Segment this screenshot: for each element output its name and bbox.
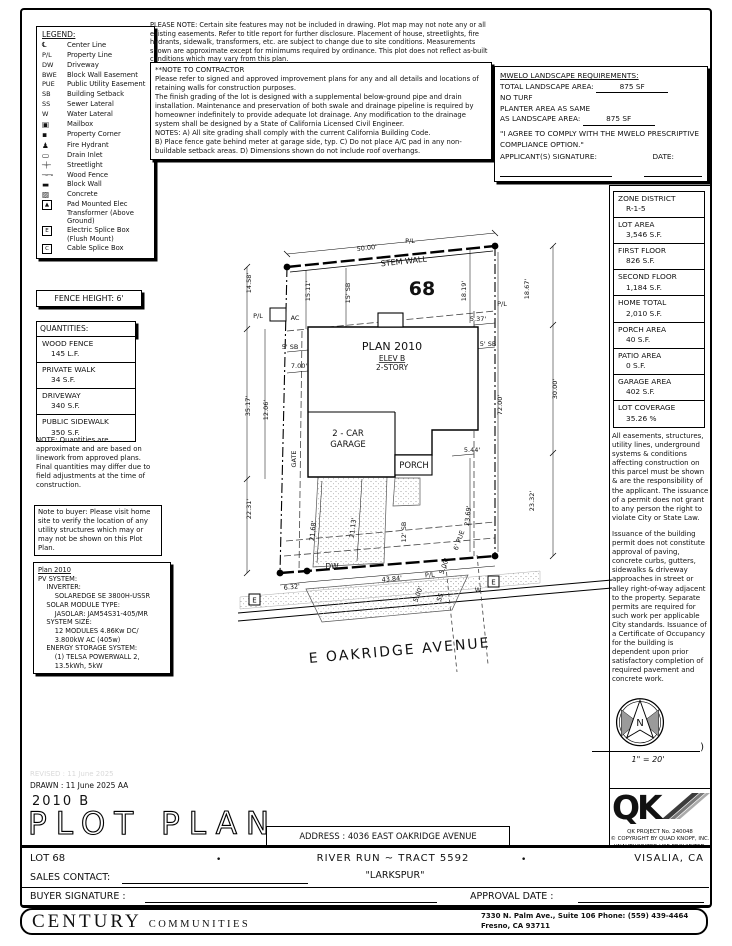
buyer-signature-line [145,889,437,903]
zone-table-row: PATIO AREA 0 S.F. [613,348,705,376]
pv-system-line: ENERGY STORAGE SYSTEM: [38,644,166,653]
dim-18-67: 18.67' [523,279,531,300]
contractor-note-box: **NOTE TO CONTRACTOR Please refer to sig… [150,62,492,160]
mwelo-no-turf: NO TURF [500,93,702,104]
lot-number: 68 [409,278,435,300]
contractor-note-paragraph: NOTES: A) All site grading shall comply … [155,129,487,138]
legend-item: ▲ Pad Mounted Elec Transformer (Above Gr… [42,200,152,225]
legend-label: Fire Hydrant [67,141,152,149]
pv-system-line: PV SYSTEM: [38,575,166,584]
zone-row-value: 0 S.F. [618,361,701,371]
quantities-row: WOOD FENCE 145 L.F. [36,336,136,364]
legend-item: BWE Block Wall Easement [42,71,152,80]
zone-row-value: 3,546 S.F. [618,230,701,240]
divider-thick-top [20,845,710,848]
ac-pad [270,308,286,321]
zone-row-label: SECOND FLOOR [618,272,701,282]
please-note-text: PLEASE NOTE: Certain site features may n… [150,21,490,64]
quantity-label: DRIVEWAY [42,391,132,401]
footer-address-line1: 7330 N. Palm Ave., Suite 106 Phone: (559… [481,912,696,921]
dim-72-00: 72.00' [496,395,504,416]
legend-symbol-icon: ▲ [42,200,67,210]
dim-5-44: 5.44' [464,446,480,454]
dim-12-sb: 12' SB [400,522,408,543]
scale-note: ) 1" = 20' [592,744,704,764]
legend-item: ▭ Drain Inlet [42,151,152,160]
zone-table-row: PORCH AREA 40 S.F. [613,322,705,350]
legend-symbol-icon: ▬ [42,180,67,189]
approval-date-label: APPROVAL DATE : [470,891,554,902]
mwelo-signature-labels: APPLICANT(S) SIGNATURE: DATE: [500,152,702,163]
quantity-label: PUBLIC SIDEWALK [42,417,132,427]
legend-symbol-icon: C [42,244,67,254]
electric-splice-box-label-right: E [491,579,495,587]
legend-label: Property Corner [67,130,152,138]
sheet-title: PLOT PLAN [28,806,278,842]
quantity-value: 340 S.F. [42,401,132,411]
buyer-signature-label: BUYER SIGNATURE : [30,891,126,902]
sales-contact-label: SALES CONTACT: [30,872,110,883]
pv-system-line: Plan 2010 [38,566,166,575]
legend-label: Sewer Lateral [67,100,152,108]
legend-symbol-icon: W [42,110,67,119]
dim-5-00-a: 5.00' [438,557,451,575]
contractor-note-title: **NOTE TO CONTRACTOR [155,66,487,75]
legend-label: Block Wall Easement [67,71,152,79]
dim-7-00: 7.00' [291,362,307,370]
zone-table-row: GARAGE AREA 402 S.F. [613,374,705,402]
legend-item: ▪ Property Corner [42,130,152,139]
legend-title: LEGEND: [42,30,152,39]
zone-row-value: R-1-5 [618,204,701,214]
legend-item: ─∘─∘ Wood Fence [42,171,152,179]
bullet-left: • [216,855,221,865]
legend-item: ℄ Center Line [42,41,152,50]
plot-plan-sheet: LEGEND: ℄ Center Line P/L Property Line … [0,0,732,946]
zone-table-row: HOME TOTAL 2,010 S.F. [613,295,705,323]
zone-row-label: PORCH AREA [618,325,701,335]
permit-note: Issuance of the building permit does not… [612,530,711,685]
legend-symbol-icon: ♟ [42,141,67,150]
legend-item: SS Sewer Lateral [42,100,152,109]
plan-story: 2-STORY [376,363,408,372]
qk-copyright: © COPYRIGHT BY QUAD KNOPF, INC. [610,836,710,843]
pv-system-line: INVERTER: [38,583,166,592]
brand-century: CENTURY [32,911,142,933]
tract-label: RIVER RUN ~ TRACT 5592 [268,853,518,864]
zone-row-value: 826 S.F. [618,256,701,266]
pv-system-line: 13.5kWh, 5kW [38,662,166,671]
quantity-label: WOOD FENCE [42,339,132,349]
footer-address: 7330 N. Palm Ave., Suite 106 Phone: (559… [481,912,696,931]
quantities-note: NOTE: Quantities are approximate and are… [36,436,152,490]
legend-label: Concrete [67,190,152,198]
mwelo-planter-value: 875 SF [583,114,655,126]
pv-system-line: JASOLAR: JAM54S31-405/MR [38,610,166,619]
quantities-row: PRIVATE WALK 34 S.F. [36,362,136,390]
mwelo-total-value: 875 SF [596,82,668,94]
lot-label: LOT 68 [30,853,65,864]
subdivision-label: "LARKSPUR" [330,870,460,881]
scale-line: ) [592,744,704,752]
legend-symbol-icon: BWE [42,71,67,80]
legend-item: W Water Lateral [42,110,152,119]
dim-30-00: 30.00' [551,379,559,400]
zone-row-label: ZONE DISTRICT [618,194,701,204]
legend-item: P/L Property Line [42,51,152,60]
legend-label: Building Setback [67,90,152,98]
qk-logo-block: QK QK PROJECT No. 240048 © COPYRIGHT BY … [610,789,710,846]
w-label: W [475,586,482,594]
electric-splice-box-label-left: E [252,597,256,605]
zone-row-value: 40 S.F. [618,335,701,345]
legend-item: ♟ Fire Hydrant [42,141,152,150]
zone-row-label: GARAGE AREA [618,377,701,387]
svg-text:QK: QK [612,789,664,825]
dim-23-32: 23.32' [528,491,536,512]
legend-item: ▨ Concrete [42,190,152,199]
legend-label: Mailbox [67,120,152,128]
legend-label: Electric Splice Box (Flush Mount) [67,226,152,243]
dw-label: DW [325,562,339,571]
drawn-date: DRAWN : 11 June 2025 AA [30,781,128,790]
city-label: VISALIA, CA [600,853,704,864]
date-label: DATE: [653,152,674,163]
dim-12-06: 12.06' [262,400,270,421]
legend-item: E Electric Splice Box (Flush Mount) [42,226,152,243]
mwelo-quote: "I AGREE TO COMPLY WITH THE MWELO PRESCR… [500,129,702,150]
legend-symbol-icon: ▣ [42,120,67,129]
zone-row-label: LOT COVERAGE [618,403,701,413]
right-column-top-line [609,185,710,186]
zone-row-value: 1,184 S.F. [618,283,701,293]
mwelo-total-row: TOTAL LANDSCAPE AREA: 875 SF [500,82,702,94]
legend-item: ─┼─ Streetlight [42,161,152,169]
right-notes: All easements, structures, utility lines… [612,432,711,692]
scale-label: 1" = 20' [592,755,704,764]
revised-date: REVISED : 11 June 2025 [30,770,114,778]
pl-label-bottom: P/L [425,571,436,580]
zone-row-value: 2,010 S.F. [618,309,701,319]
legend-symbol-icon: ▪ [42,130,67,139]
legend-item: ▬ Block Wall [42,180,152,189]
ac-label: AC [291,314,300,322]
porch-label: PORCH [399,461,429,471]
dim-14-58: 14.58' [245,273,253,294]
pv-system-line: 3.800kW AC (405w) [38,636,166,645]
quantity-label: PRIVATE WALK [42,365,132,375]
legend-label: Streetlight [67,161,152,169]
zone-table: ZONE DISTRICT R-1-5 LOT AREA 3,546 S.F. … [613,192,705,428]
zone-row-label: LOT AREA [618,220,701,230]
garage-label-2: GARAGE [330,440,366,450]
pv-system-line: SOLAR MODULE TYPE: [38,601,166,610]
brand: CENTURY COMMUNITIES [32,911,250,933]
quantities-table: QUANTITIES: WOOD FENCE 145 L.F. PRIVATE … [36,322,136,442]
quantity-value: 34 S.F. [42,375,132,385]
legend-symbol-icon: DW [42,61,67,70]
fence-height-box: FENCE HEIGHT: 6' [36,290,142,307]
mwelo-title: MWELO LANDSCAPE REQUIREMENTS: [500,71,702,82]
walkway-concrete [393,478,420,506]
address-box: ADDRESS : 4036 EAST OAKRIDGE AVENUE [266,826,510,847]
gate-label: GATE [290,450,298,467]
qk-logo: QK [610,789,710,825]
garage-label-1: 2 - CAR [332,429,364,439]
legend-label: Cable Splice Box [67,244,152,252]
zone-row-value: 402 S.F. [618,387,701,397]
legend-label: Water Lateral [67,110,152,118]
zone-row-label: FIRST FLOOR [618,246,701,256]
legend-label: Public Utility Easement [67,80,152,88]
zone-row-label: PATIO AREA [618,351,701,361]
zone-table-row: LOT COVERAGE 35.26 % [613,400,705,428]
divider-line [21,887,709,888]
footer-address-line2: Fresno, CA 93711 [481,922,696,931]
mwelo-signature-lines [500,176,702,177]
plan-title: PLAN 2010 [362,340,422,353]
legend-symbol-icon: ℄ [42,41,67,50]
plan-elev: ELEV B [379,354,405,363]
dim-23-69: 23.69' [463,505,473,526]
legend-item: SB Building Setback [42,90,152,99]
dim-15-11: 15.11' [304,281,312,302]
legend-label: Block Wall [67,180,152,188]
legend-label: Drain Inlet [67,151,152,159]
legend-label: Property Line [67,51,152,59]
dim-22-31: 22.31' [245,499,253,520]
dim-6-32: 6.32' [283,582,300,592]
dim-15-sb: 15' SB [344,283,352,304]
legend-label: Pad Mounted Elec Transformer (Above Grou… [67,200,152,225]
pl-label-top: P/L [405,237,415,245]
legend-symbol-icon: ─∘─∘ [42,171,67,179]
pv-system-line: (1) TELSA POWERWALL 2, [38,653,166,662]
dim-35-17: 35.17' [244,396,252,417]
dim-5-37: 5.37' [470,315,486,323]
legend-item: C Cable Splice Box [42,244,152,254]
zone-table-row: FIRST FLOOR 826 S.F. [613,243,705,271]
legend-symbol-icon: ─┼─ [42,161,67,169]
mwelo-planter-row: AS LANDSCAPE AREA: 875 SF [500,114,702,126]
legend-symbol-icon: P/L [42,51,67,60]
footer-bar: CENTURY COMMUNITIES 7330 N. Palm Ave., S… [20,908,708,935]
plot-drawing: 50.00' P/L STEM WALL 68 14.58' 15.11' 15… [150,183,620,785]
legend-symbol-icon: E [42,226,67,236]
zone-table-row: LOT AREA 3,546 S.F. [613,217,705,245]
legend-symbol-icon: ▨ [42,190,67,199]
zone-row-label: HOME TOTAL [618,298,701,308]
legend-symbol-icon: SS [42,100,67,109]
dim-50-00: 50.00' [356,243,377,253]
legend-symbol-icon: ▭ [42,151,67,160]
zone-table-row: SECOND FLOOR 1,184 S.F. [613,269,705,297]
contractor-note-paragraph: Please refer to signed and approved impr… [155,75,487,93]
easements-note: All easements, structures, utility lines… [612,432,711,523]
legend-item: PUE Public Utility Easement [42,80,152,89]
quantities-row: DRIVEWAY 340 S.F. [36,388,136,416]
applicant-signature-label: APPLICANT(S) SIGNATURE: [500,152,597,163]
legend-label: Wood Fence [67,171,152,179]
pv-system-line: SYSTEM SIZE: [38,618,166,627]
dim-5-sb-right: 5' SB [480,340,497,348]
zone-table-row: ZONE DISTRICT R-1-5 [613,191,705,219]
legend-symbol-icon: SB [42,90,67,99]
bullet-right: • [521,855,526,865]
approval-date-line [578,889,704,903]
mwelo-box: MWELO LANDSCAPE REQUIREMENTS: TOTAL LAND… [494,66,708,182]
contractor-note-paragraph: B) Place fence gate behind meter at gara… [155,138,487,156]
mwelo-planter-line1: PLANTER AREA AS SAME [500,104,702,115]
zone-row-value: 35.26 % [618,414,701,424]
pl-label-right: P/L [497,300,507,308]
sales-contact-line [122,870,308,884]
pv-system-line: 12 MODULES 4.86Kw DC/ [38,627,166,636]
street-name: E OAKRIDGE AVENUE [308,635,491,667]
legend-symbol-icon: PUE [42,80,67,89]
legend-item: ▣ Mailbox [42,120,152,129]
quantity-value: 145 L.F. [42,349,132,359]
legend-label: Center Line [67,41,152,49]
dim-5-sb-left: 5' SB [282,343,299,351]
pl-label-left: P/L [253,312,263,320]
legend-item: DW Driveway [42,61,152,70]
legend-label: Driveway [67,61,152,69]
dim-18-19: 18.19' [460,281,468,302]
quantities-title: QUANTITIES: [36,321,136,338]
pv-system-line: SOLAREDGE SE 3800H-USSR [38,592,166,601]
date-line [644,176,702,177]
north-letter: N [636,718,644,729]
legend-box: LEGEND: ℄ Center Line P/L Property Line … [36,26,155,259]
contractor-note-paragraph: The finish grading of the lot is designe… [155,93,487,129]
applicant-signature-line [500,176,612,177]
buyer-note-box: Note to buyer: Please visit home site to… [34,505,162,556]
brand-communities: COMMUNITIES [149,919,251,930]
